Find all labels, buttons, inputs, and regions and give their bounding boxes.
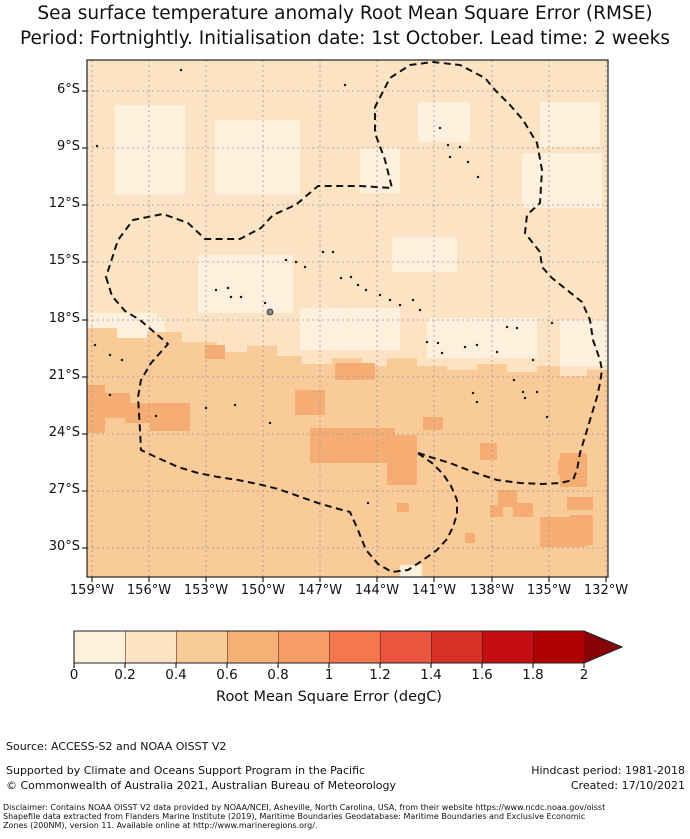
colorbar-tick-label: 0.8	[256, 667, 300, 683]
colorbar-axis-label: Root Mean Square Error (degC)	[129, 689, 529, 705]
island-marker	[269, 422, 271, 424]
rmse-patch-high	[465, 533, 475, 543]
copyright-text: © Commonwealth of Australia 2021, Austra…	[6, 779, 396, 792]
island-marker	[205, 407, 207, 409]
rmse-patch-high	[330, 430, 390, 460]
island-marker	[532, 359, 534, 361]
island-marker	[476, 344, 478, 346]
y-tick-label: 30°S	[4, 539, 80, 554]
rmse-patch-high	[423, 417, 443, 430]
island-marker	[472, 392, 474, 394]
y-tick-label: 21°S	[4, 368, 80, 383]
rmse-patch-low	[215, 120, 300, 195]
rmse-patch-high	[397, 503, 409, 512]
y-tick-label: 12°S	[4, 196, 80, 211]
hindcast-period-text: Hindcast period: 1981-2018	[531, 764, 685, 777]
island-marker	[546, 416, 548, 418]
source-text: Source: ACCESS-S2 and NOAA OISST V2	[6, 740, 226, 753]
x-tick-label: 150°W	[233, 583, 293, 598]
x-tick-label: 138°W	[462, 583, 522, 598]
x-tick-label: 135°W	[519, 583, 579, 598]
y-tick-label: 15°S	[4, 253, 80, 268]
rmse-patch-low	[115, 105, 185, 195]
island-marker	[441, 352, 443, 354]
rmse-patch-high	[387, 435, 417, 485]
rmse-patch-high	[513, 503, 533, 517]
disclaimer-line-3: Zones (200NM), version 11. Available onl…	[3, 821, 690, 830]
island-marker	[513, 379, 515, 381]
x-tick-label: 132°W	[576, 583, 636, 598]
map-canvas	[87, 60, 608, 577]
chart-title: Sea surface temperature anomaly Root Mea…	[37, 3, 652, 24]
island-marker	[109, 394, 111, 396]
island-marker	[516, 327, 518, 329]
island-marker	[227, 287, 229, 289]
rmse-patch-high	[570, 515, 593, 545]
island-marker	[536, 391, 538, 393]
colorbar-segment	[380, 631, 431, 663]
colorbar-segment	[74, 631, 125, 663]
rmse-patch-high	[295, 390, 325, 415]
island-marker	[180, 69, 182, 71]
island-marker	[389, 299, 391, 301]
created-date-text: Created: 17/10/2021	[571, 779, 685, 792]
colorbar-segment	[125, 631, 176, 663]
island-marker	[439, 127, 441, 129]
island-marker	[240, 296, 242, 298]
x-tick-label: 153°W	[176, 583, 236, 598]
rmse-patch-high	[567, 497, 593, 510]
island-marker	[426, 341, 428, 343]
island-marker	[496, 351, 498, 353]
colorbar-segment	[431, 631, 482, 663]
y-tick-label: 24°S	[4, 425, 80, 440]
x-tick-label: 141°W	[404, 583, 464, 598]
colorbar-segment	[227, 631, 278, 663]
island-marker	[344, 84, 346, 86]
island-marker	[524, 397, 526, 399]
y-tick-label: 18°S	[4, 311, 80, 326]
x-tick-label: 159°W	[62, 583, 122, 598]
colorbar-tick-label: 0.4	[154, 667, 198, 683]
x-tick-label: 156°W	[119, 583, 179, 598]
colorbar-segment	[533, 631, 584, 663]
colorbar	[73, 629, 633, 671]
island-marker	[449, 156, 451, 158]
colorbar-segment	[176, 631, 227, 663]
island-marker	[399, 304, 401, 306]
island-marker	[94, 344, 96, 346]
island-marker	[477, 176, 479, 178]
island-marker	[412, 299, 414, 301]
colorbar-segment	[278, 631, 329, 663]
island-marker	[322, 251, 324, 253]
rmse-patch-low	[392, 237, 457, 272]
island-marker	[506, 326, 508, 328]
rmse-patch-low	[300, 308, 400, 350]
island-marker	[285, 259, 287, 261]
rmse-patch-high	[205, 345, 225, 359]
supported-by-text: Supported by Climate and Oceans Support …	[6, 764, 365, 777]
rmse-patch-high	[335, 363, 375, 380]
island-marker	[551, 322, 553, 324]
disclaimer-line-1: Disclaimer: Contains NOAA OISST V2 data …	[3, 803, 690, 812]
island-marker	[467, 161, 469, 163]
disclaimer-line-2: Shapefile data extracted from Flanders M…	[3, 812, 690, 821]
island-marker	[459, 146, 461, 148]
island-marker	[419, 309, 421, 311]
colorbar-tick-label: 1.6	[460, 667, 504, 683]
x-tick-label: 144°W	[347, 583, 407, 598]
island-marker	[522, 391, 524, 393]
island-marker	[447, 144, 449, 146]
colorbar-extend-arrow	[584, 631, 622, 663]
island-marker	[264, 302, 266, 304]
island-marker	[350, 276, 352, 278]
colorbar-tick-label: 2	[562, 667, 606, 683]
colorbar-tick-label: 0.2	[103, 667, 147, 683]
rmse-patch-low	[560, 320, 608, 366]
x-tick-label: 147°W	[290, 583, 350, 598]
colorbar-tick-label: 1	[307, 667, 351, 683]
y-tick-label: 9°S	[4, 139, 80, 154]
rmse-patch-high	[480, 443, 497, 460]
island-marker	[109, 354, 111, 356]
y-tick-label: 6°S	[4, 82, 80, 97]
rmse-patch-low	[427, 318, 537, 358]
island-marker	[230, 296, 232, 298]
island-marker	[96, 145, 98, 147]
rmse-patch-low	[418, 102, 470, 142]
rmse-patch-low	[400, 565, 422, 577]
colorbar-tick-label: 1.2	[358, 667, 402, 683]
chart-subtitle: Period: Fortnightly. Initialisation date…	[20, 28, 670, 49]
colorbar-segment	[329, 631, 380, 663]
y-tick-label: 27°S	[4, 482, 80, 497]
colorbar-tick-label: 1.4	[409, 667, 453, 683]
colorbar-tick-label: 0.6	[205, 667, 249, 683]
map-plot-area	[87, 60, 608, 577]
island-marker	[295, 261, 297, 263]
island-tahiti	[267, 309, 273, 315]
island-marker	[357, 284, 359, 286]
island-marker	[215, 289, 217, 291]
colorbar-segment	[482, 631, 533, 663]
island-marker	[365, 289, 367, 291]
island-marker	[121, 359, 123, 361]
colorbar-tick-label: 1.8	[511, 667, 555, 683]
island-marker	[304, 266, 306, 268]
island-marker	[155, 415, 157, 417]
island-marker	[332, 251, 334, 253]
colorbar-tick-label: 0	[52, 667, 96, 683]
rmse-patch-low	[198, 255, 293, 313]
island-marker	[476, 401, 478, 403]
island-marker	[437, 342, 439, 344]
island-marker	[367, 502, 369, 504]
island-marker	[464, 346, 466, 348]
island-marker	[234, 404, 236, 406]
island-marker	[379, 294, 381, 296]
rmse-patch-low	[522, 153, 602, 208]
island-marker	[340, 277, 342, 279]
